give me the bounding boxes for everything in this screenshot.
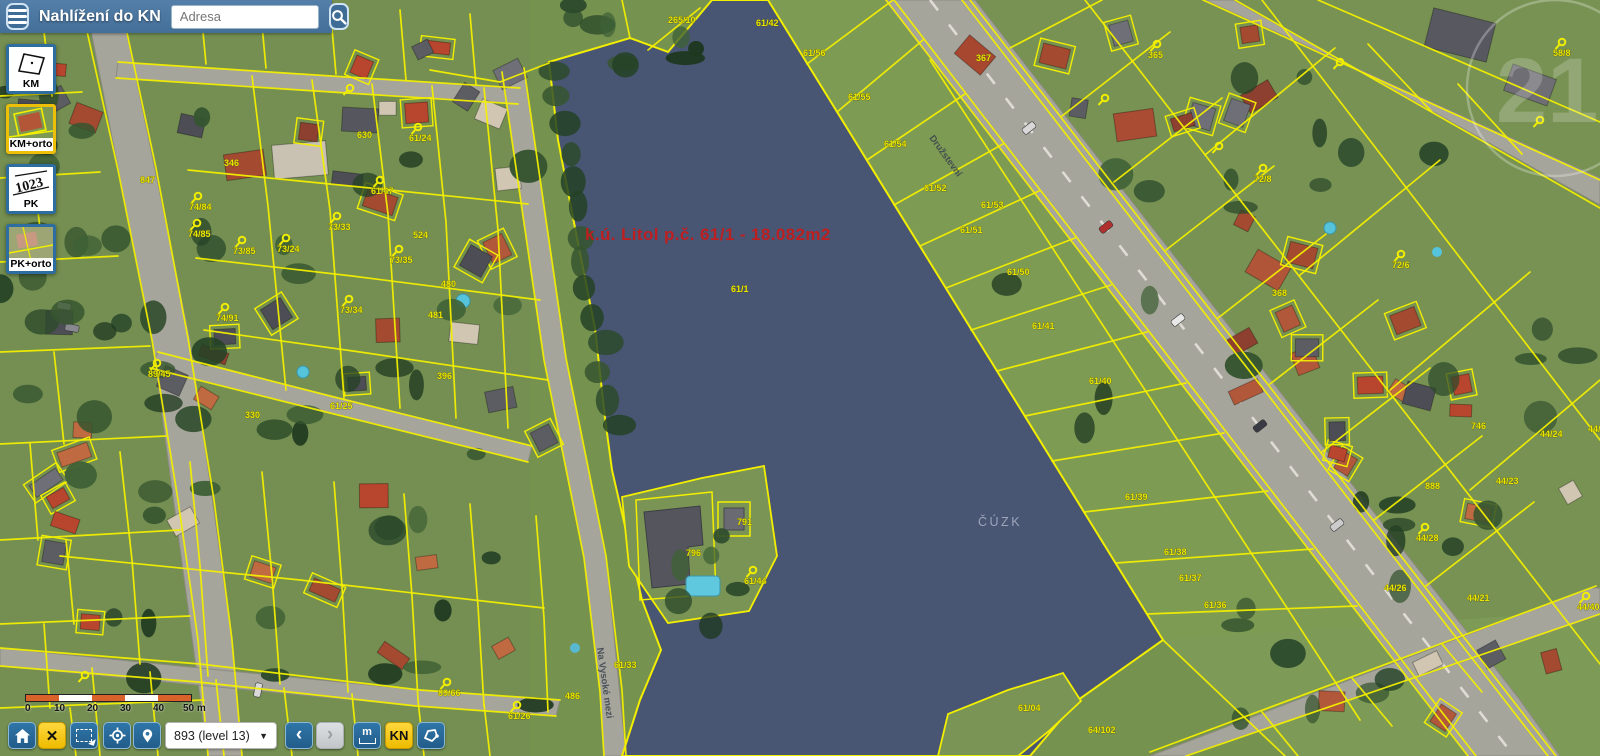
svg-text:73/24: 73/24 (277, 244, 300, 254)
svg-text:888: 888 (1425, 481, 1440, 491)
forward-icon: › (327, 725, 333, 744)
search-button[interactable] (329, 3, 349, 30)
svg-text:524: 524 (413, 230, 428, 240)
svg-text:73/33: 73/33 (328, 222, 351, 232)
km-orto-thumbnail-icon (9, 107, 53, 141)
svg-text:847: 847 (140, 175, 155, 185)
svg-text:89/45: 89/45 (148, 369, 171, 379)
svg-text:73/85: 73/85 (233, 246, 256, 256)
svg-text:61/24: 61/24 (409, 133, 432, 143)
clear-selection-button[interactable]: ✕ (38, 722, 66, 749)
svg-text:365: 365 (1148, 50, 1163, 60)
back-icon: ‹ (296, 725, 302, 744)
svg-text:61/56: 61/56 (803, 48, 826, 58)
svg-text:367: 367 (976, 53, 991, 63)
cuzk-watermark: ČÚZK (978, 514, 1022, 529)
scale-bar-segments (25, 694, 192, 702)
svg-text:74/85: 74/85 (188, 229, 211, 239)
svg-text:61/04: 61/04 (1018, 703, 1041, 713)
svg-text:61/52: 61/52 (924, 183, 947, 193)
app-title: Nahlížení do KN (39, 8, 161, 26)
svg-text:44/28: 44/28 (1416, 533, 1439, 543)
svg-text:630: 630 (357, 130, 372, 140)
measure-button[interactable]: m (353, 722, 381, 749)
svg-text:480: 480 (441, 279, 456, 289)
svg-text:346: 346 (224, 158, 239, 168)
app-window: 84734663061/2461/4774/8474/8573/3352473/… (0, 0, 1600, 756)
svg-text:61/42: 61/42 (756, 18, 779, 28)
svg-text:61/38: 61/38 (1164, 547, 1187, 557)
pk-thumbnail-icon: 1023 (9, 167, 53, 201)
kn-button[interactable]: KN (385, 722, 413, 749)
home-button[interactable] (8, 722, 36, 749)
svg-text:74/91: 74/91 (216, 313, 239, 323)
svg-text:44/24: 44/24 (1540, 429, 1563, 439)
svg-text:61/47: 61/47 (371, 186, 394, 196)
target-icon (109, 727, 126, 744)
svg-text:796: 796 (686, 548, 701, 558)
svg-text:746: 746 (1471, 421, 1486, 431)
svg-text:73/35: 73/35 (390, 255, 413, 265)
layer-tile-pk[interactable]: 1023 PK (6, 164, 56, 214)
area-select-icon (76, 729, 92, 742)
area-select-button[interactable] (70, 722, 98, 749)
svg-text:368: 368 (1272, 288, 1287, 298)
map-canvas[interactable]: 84734663061/2461/4774/8474/8573/3352473/… (0, 0, 1600, 756)
svg-text:486: 486 (565, 691, 580, 701)
locate-button[interactable] (133, 722, 161, 749)
svg-text:61/39: 61/39 (1125, 492, 1148, 502)
svg-text:61/55: 61/55 (848, 92, 871, 102)
svg-text:61/50: 61/50 (1007, 267, 1030, 277)
svg-text:61/36: 61/36 (1204, 600, 1227, 610)
menu-button[interactable] (6, 3, 29, 30)
svg-text:265/10: 265/10 (668, 15, 696, 25)
layer-tile-km[interactable]: KM (6, 44, 56, 94)
svg-text:44/40: 44/40 (1577, 602, 1600, 612)
search-icon (331, 9, 347, 25)
svg-text:61/40: 61/40 (1089, 376, 1112, 386)
svg-text:396: 396 (437, 371, 452, 381)
address-search-input[interactable] (171, 5, 319, 29)
corner-watermark-text: 21 (1496, 40, 1598, 142)
polygon-select-button[interactable] (417, 722, 445, 749)
svg-text:61/1: 61/1 (731, 284, 749, 294)
svg-text:61/54: 61/54 (884, 139, 907, 149)
svg-text:330: 330 (245, 410, 260, 420)
svg-text:61/41: 61/41 (1032, 321, 1055, 331)
svg-text:61/33: 61/33 (614, 660, 637, 670)
svg-text:44/23: 44/23 (1496, 476, 1519, 486)
header-bar: Nahlížení do KN (0, 0, 332, 33)
svg-text:61/53: 61/53 (981, 200, 1004, 210)
polygon-icon (423, 728, 439, 743)
svg-text:72/6: 72/6 (1392, 260, 1410, 270)
svg-text:64/102: 64/102 (1088, 725, 1116, 735)
km-thumbnail-icon (9, 47, 53, 81)
measure-icon: m (359, 728, 376, 744)
svg-text:791: 791 (737, 517, 752, 527)
close-icon: ✕ (46, 727, 59, 745)
forward-button[interactable]: › (316, 722, 344, 749)
center-map-button[interactable] (103, 722, 131, 749)
pk-orto-thumbnail-icon (9, 227, 53, 261)
svg-text:74/84: 74/84 (189, 202, 212, 212)
layer-switcher: KM KM+orto 1023 PK (6, 44, 56, 274)
svg-text:61/26: 61/26 (508, 711, 531, 721)
layer-tile-km-orto[interactable]: KM+orto (6, 104, 56, 154)
svg-text:44/21: 44/21 (1467, 593, 1490, 603)
chevron-down-icon: ▼ (259, 731, 268, 741)
home-icon (14, 728, 31, 744)
selected-parcel-label: k.ú. Litol p.č. 61/1 - 18.082m2 (585, 225, 831, 244)
svg-text:72/8: 72/8 (1254, 174, 1272, 184)
svg-text:61/51: 61/51 (960, 225, 983, 235)
svg-text:89/66: 89/66 (438, 688, 461, 698)
scale-bar: 0 10 20 30 40 50 m (25, 694, 215, 715)
layer-tile-pk-orto[interactable]: PK+orto (6, 224, 56, 274)
svg-text:61/37: 61/37 (1179, 573, 1202, 583)
svg-text:481: 481 (428, 310, 443, 320)
svg-text:73/34: 73/34 (340, 305, 363, 315)
zoom-level-select[interactable]: 893 (level 13) ▼ (165, 722, 277, 749)
svg-text:44/41: 44/41 (1588, 424, 1600, 434)
svg-text:61/25: 61/25 (330, 401, 353, 411)
back-button[interactable]: ‹ (285, 722, 313, 749)
scale-bar-ticks: 0 10 20 30 40 50 m (25, 702, 215, 715)
svg-text:61/44: 61/44 (744, 576, 767, 586)
location-pin-icon (140, 727, 155, 744)
svg-text:44/26: 44/26 (1384, 583, 1407, 593)
